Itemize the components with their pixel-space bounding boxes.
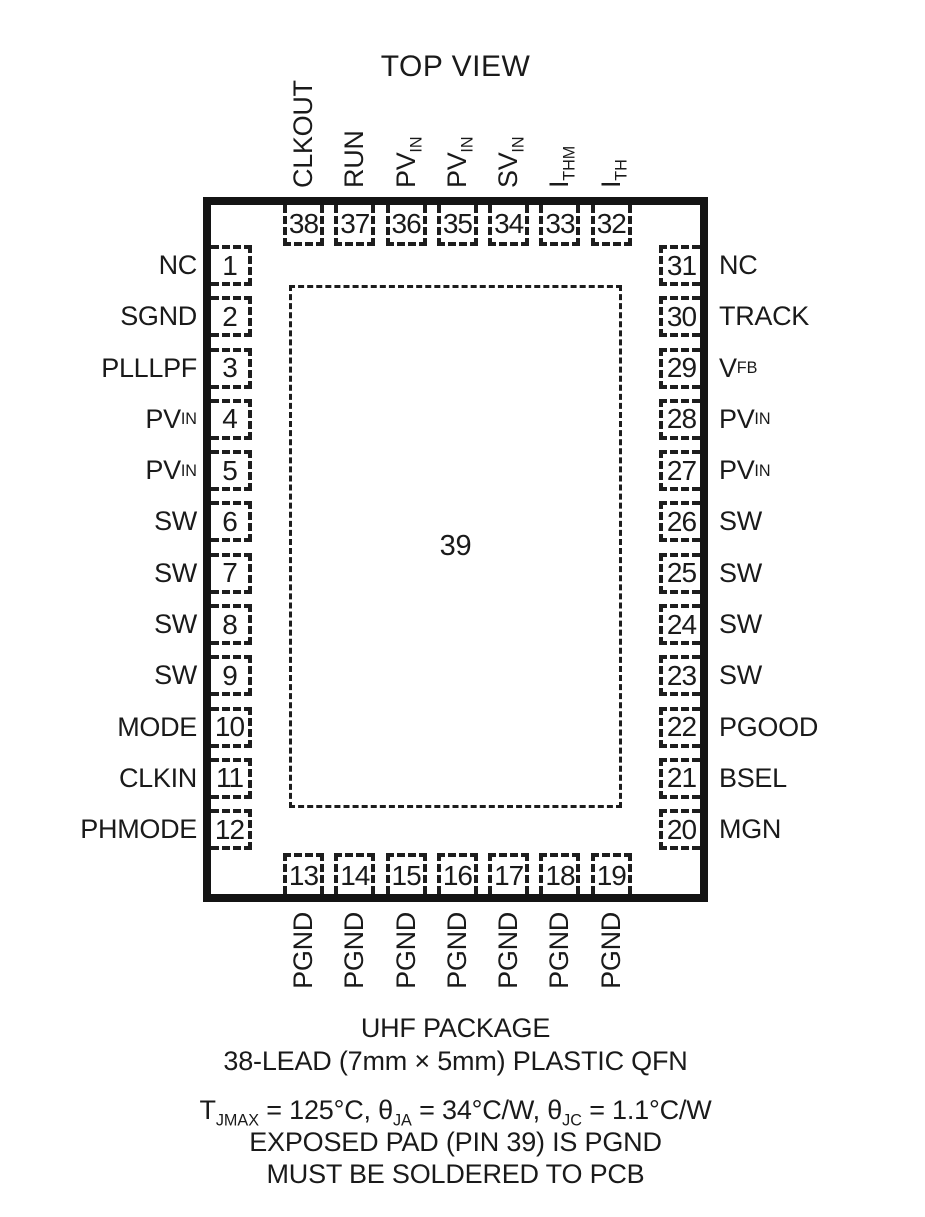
- label-text: SW: [154, 558, 197, 589]
- pin-labels-top: CLKOUT RUN PVIN PVIN SVIN ITHM ITH: [283, 63, 632, 188]
- pin-number: 4: [222, 403, 237, 435]
- exposed-pad-number: 39: [440, 530, 472, 563]
- pin-box: 7: [211, 553, 252, 594]
- pin-number: 32: [597, 208, 626, 240]
- pin-label: ITH: [591, 63, 632, 188]
- label-text: CLKOUT: [288, 80, 318, 188]
- pin-box: 26: [659, 501, 700, 542]
- pin-box: 34: [488, 205, 529, 246]
- pin-label: PVIN: [145, 450, 197, 491]
- pin-label: CLKIN: [119, 758, 197, 799]
- pin-label: SW: [154, 501, 197, 542]
- pin-number: 35: [443, 208, 472, 240]
- label-text: V: [719, 353, 737, 384]
- pin-label: NC: [159, 245, 197, 286]
- label-text: PGND: [544, 912, 574, 989]
- package-notes-block: TJMAX = 125°C, θJA = 34°C/W, θJC = 1.1°C…: [103, 1094, 808, 1190]
- pin-number: 18: [545, 860, 574, 892]
- package-description: 38-LEAD (7mm × 5mm) PLASTIC QFN: [103, 1045, 808, 1078]
- pin-box: 6: [211, 501, 252, 542]
- pin-label: SW: [154, 655, 197, 696]
- pin-labels-left: NC SGND PLLLPF PVIN PVIN SW SW SW SW MOD…: [0, 245, 197, 850]
- pin-number: 37: [340, 208, 369, 240]
- pin-label: BSEL: [719, 758, 787, 799]
- pin-box: 31: [659, 245, 700, 286]
- solder-note: MUST BE SOLDERED TO PCB: [103, 1158, 808, 1190]
- pins-bottom-row: 13 14 15 16 17 18 19: [283, 853, 632, 894]
- pin-box: 3: [211, 348, 252, 389]
- theta-jc: θ: [547, 1095, 562, 1125]
- pin-number: 11: [216, 762, 243, 794]
- label-subscript: IN: [510, 136, 528, 152]
- pin-number: 2: [222, 301, 237, 333]
- pin-label: SVIN: [488, 63, 529, 188]
- pin-label: SW: [154, 604, 197, 645]
- pin-number: 10: [215, 711, 244, 743]
- pin-number: 7: [222, 557, 237, 589]
- pin-box: 30: [659, 296, 700, 337]
- pin-number: 8: [222, 609, 237, 641]
- label-text: PV: [145, 455, 180, 486]
- pin-label: SW: [719, 553, 762, 594]
- pin-label: PGND: [386, 912, 427, 997]
- pin-labels-right: NC TRACK VFB PVIN PVIN SW SW SW SW PGOOD…: [719, 245, 925, 850]
- pin-box: 14: [334, 853, 375, 894]
- label-text: SV: [493, 153, 523, 188]
- pin-number: 9: [222, 660, 237, 692]
- pin-box: 29: [659, 348, 700, 389]
- label-text: NC: [159, 250, 197, 281]
- pin-number: 21: [667, 762, 696, 794]
- label-subscript: IN: [407, 136, 425, 152]
- label-subscript: IN: [458, 136, 476, 152]
- pin-box: 12: [211, 809, 252, 850]
- pin-number: 16: [443, 860, 472, 892]
- pin-box: 15: [386, 853, 427, 894]
- thermal-t: T: [200, 1095, 216, 1125]
- label-text: PV: [442, 153, 472, 188]
- label-text: RUN: [339, 130, 369, 188]
- pin-number: 26: [667, 506, 696, 538]
- pin-number: 24: [667, 609, 696, 641]
- pin-box: 21: [659, 758, 700, 799]
- label-text: SW: [719, 558, 762, 589]
- pin-label: PHMODE: [80, 809, 197, 850]
- label-text: MODE: [117, 712, 197, 743]
- pin-label: PVIN: [719, 399, 771, 440]
- pin-box: 17: [488, 853, 529, 894]
- pin-number: 34: [494, 208, 523, 240]
- pin-box: 37: [334, 205, 375, 246]
- pin-number: 22: [667, 711, 696, 743]
- thermal-eq2: = 34°C/W,: [412, 1095, 547, 1125]
- label-text: TRACK: [719, 301, 809, 332]
- label-text: SW: [719, 506, 762, 537]
- pin-label: PGND: [488, 912, 529, 997]
- pin-label: PVIN: [145, 399, 197, 440]
- label-text: PLLLPF: [101, 353, 197, 384]
- thermal-note: TJMAX = 125°C, θJA = 34°C/W, θJC = 1.1°C…: [103, 1094, 808, 1126]
- pin-number: 1: [222, 250, 237, 282]
- label-text: SW: [154, 660, 197, 691]
- pin-number: 14: [340, 860, 369, 892]
- pin-number: 33: [545, 208, 574, 240]
- pin-box: 4: [211, 399, 252, 440]
- label-text: BSEL: [719, 763, 787, 794]
- label-text: SW: [719, 660, 762, 691]
- pin-box: 13: [283, 853, 324, 894]
- pin-label: PVIN: [437, 63, 478, 188]
- theta-ja: θ: [378, 1095, 393, 1125]
- pin-label: MODE: [117, 707, 197, 748]
- pin-number: 20: [667, 814, 696, 846]
- label-text: PGOOD: [719, 712, 818, 743]
- pin-label: TRACK: [719, 296, 809, 337]
- pin-label: PGND: [591, 912, 632, 997]
- pin-box: 16: [437, 853, 478, 894]
- label-text: CLKIN: [119, 763, 197, 794]
- package-name-block: UHF PACKAGE 38-LEAD (7mm × 5mm) PLASTIC …: [103, 1012, 808, 1078]
- pin-box: 11: [211, 758, 252, 799]
- pin-label: PLLLPF: [101, 348, 197, 389]
- pin-box: 1: [211, 245, 252, 286]
- pin-number: 29: [667, 352, 696, 384]
- label-text: PV: [145, 404, 180, 435]
- label-text: MGN: [719, 814, 781, 845]
- pin-label: ITHM: [539, 63, 580, 188]
- pin-number: 15: [392, 860, 421, 892]
- pin-box: 22: [659, 707, 700, 748]
- pin-label: RUN: [334, 63, 375, 188]
- label-text: PV: [719, 455, 754, 486]
- pin-label: PGOOD: [719, 707, 818, 748]
- pin-box: 32: [591, 205, 632, 246]
- pin-box: 28: [659, 399, 700, 440]
- thermal-eq3: = 1.1°C/W: [582, 1095, 712, 1125]
- pin-number: 5: [222, 455, 237, 487]
- pin-box: 9: [211, 655, 252, 696]
- label-text: PGND: [596, 912, 626, 989]
- label-subscript: TH: [612, 159, 630, 181]
- pin-number: 19: [597, 860, 626, 892]
- exposed-pad-note: EXPOSED PAD (PIN 39) IS PGND: [103, 1126, 808, 1158]
- pin-number: 13: [289, 860, 318, 892]
- pin-label: MGN: [719, 809, 781, 850]
- pin-label: PVIN: [719, 450, 771, 491]
- pin-box: 20: [659, 809, 700, 850]
- pins-left-column: 1 2 3 4 5 6 7 8 9 10 11 12: [211, 245, 252, 850]
- label-text: I: [544, 181, 574, 188]
- pin-box: 25: [659, 553, 700, 594]
- pin-number: 38: [289, 208, 318, 240]
- pin-number: 3: [222, 352, 237, 384]
- pin-label: PGND: [437, 912, 478, 997]
- pin-box: 2: [211, 296, 252, 337]
- pin-label: SW: [719, 501, 762, 542]
- label-text: SW: [154, 506, 197, 537]
- pin-box: 5: [211, 450, 252, 491]
- pin-box: 18: [539, 853, 580, 894]
- pin-number: 12: [215, 814, 244, 846]
- pin-box: 33: [539, 205, 580, 246]
- label-text: PGND: [339, 912, 369, 989]
- pin-number: 36: [392, 208, 421, 240]
- pin-number: 25: [667, 557, 696, 589]
- pin-label: CLKOUT: [283, 63, 324, 188]
- label-text: PGND: [288, 912, 318, 989]
- pin-box: 38: [283, 205, 324, 246]
- label-text: PHMODE: [80, 814, 197, 845]
- pin-box: 10: [211, 707, 252, 748]
- label-text: NC: [719, 250, 757, 281]
- pin-box: 24: [659, 604, 700, 645]
- pins-top-row: 38 37 36 35 34 33 32: [283, 205, 632, 246]
- label-text: PGND: [493, 912, 523, 989]
- pin-label: NC: [719, 245, 757, 286]
- pin-box: 8: [211, 604, 252, 645]
- label-text: PGND: [442, 912, 472, 989]
- pin-label: PGND: [334, 912, 375, 997]
- pin-label: VFB: [719, 348, 757, 389]
- exposed-pad: 39: [289, 285, 622, 808]
- label-text: PGND: [391, 912, 421, 989]
- pins-right-column: 31 30 29 28 27 26 25 24 23 22 21 20: [659, 245, 700, 850]
- pinout-diagram: TOP VIEW CLKOUT RUN PVIN PVIN SVIN ITHM …: [0, 0, 925, 1217]
- label-text: SW: [154, 609, 197, 640]
- pin-label: PVIN: [386, 63, 427, 188]
- pin-box: 19: [591, 853, 632, 894]
- pin-label: SW: [719, 604, 762, 645]
- pin-labels-bottom: PGND PGND PGND PGND PGND PGND PGND: [283, 912, 632, 997]
- pin-number: 31: [667, 250, 696, 282]
- pin-number: 6: [222, 506, 237, 538]
- thermal-eq1: = 125°C,: [259, 1095, 378, 1125]
- pin-label: SGND: [120, 296, 197, 337]
- pin-box: 27: [659, 450, 700, 491]
- pin-number: 23: [667, 660, 696, 692]
- label-text: PV: [719, 404, 754, 435]
- label-text: I: [596, 181, 626, 188]
- label-text: SGND: [120, 301, 197, 332]
- pin-box: 35: [437, 205, 478, 246]
- pin-label: SW: [719, 655, 762, 696]
- label-text: SW: [719, 609, 762, 640]
- pin-number: 17: [494, 860, 523, 892]
- pin-number: 28: [667, 403, 696, 435]
- pin-number: 30: [667, 301, 696, 333]
- pin-label: PGND: [539, 912, 580, 997]
- pin-box: 23: [659, 655, 700, 696]
- pin-label: SW: [154, 553, 197, 594]
- label-text: PV: [391, 153, 421, 188]
- package-name: UHF PACKAGE: [103, 1012, 808, 1045]
- pin-number: 27: [667, 455, 696, 487]
- pin-box: 36: [386, 205, 427, 246]
- label-subscript: THM: [561, 146, 579, 181]
- pin-label: PGND: [283, 912, 324, 997]
